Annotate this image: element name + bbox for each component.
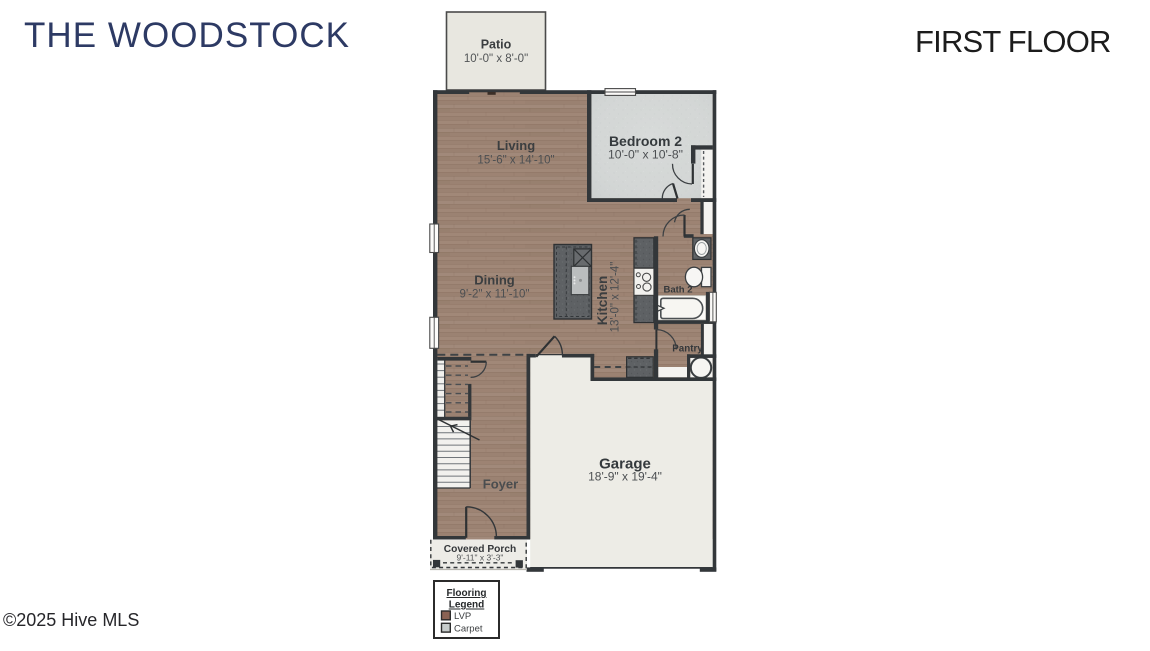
svg-text:10'-0" x 10'-8": 10'-0" x 10'-8" — [608, 148, 683, 162]
svg-text:Pantry: Pantry — [672, 344, 703, 355]
svg-text:18'-9" x 19'-4": 18'-9" x 19'-4" — [588, 470, 662, 484]
svg-text:Flooring: Flooring — [447, 588, 487, 599]
svg-text:10'-0" x 8'-0": 10'-0" x 8'-0" — [464, 53, 528, 65]
svg-text:Dining: Dining — [474, 273, 514, 288]
svg-text:15'-6" x 14'-10": 15'-6" x 14'-10" — [477, 155, 554, 167]
svg-text:9'-11" x 3'-3": 9'-11" x 3'-3" — [457, 553, 504, 563]
svg-text:Patio: Patio — [481, 38, 512, 52]
svg-text:Carpet: Carpet — [454, 623, 483, 634]
svg-text:13'-0" x 12'-4": 13'-0" x 12'-4" — [610, 262, 622, 333]
svg-text:Bath 2: Bath 2 — [663, 285, 692, 296]
svg-text:Living: Living — [497, 138, 535, 153]
svg-text:Foyer: Foyer — [483, 477, 518, 492]
svg-text:Legend: Legend — [449, 600, 485, 611]
svg-text:LVP: LVP — [454, 611, 471, 622]
svg-text:9'-2" x 11'-10": 9'-2" x 11'-10" — [460, 289, 530, 301]
svg-text:Kitchen: Kitchen — [595, 276, 610, 326]
